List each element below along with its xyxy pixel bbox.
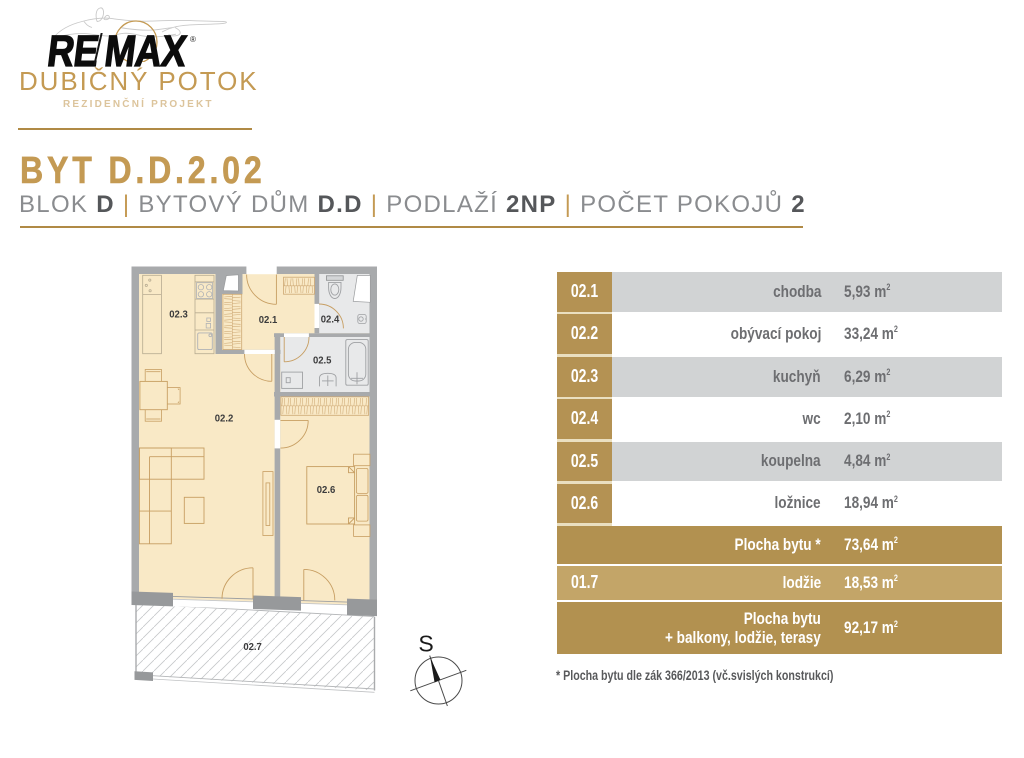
svg-text:S: S [418,631,433,657]
svg-text:02.1: 02.1 [259,315,278,326]
svg-text:02.3: 02.3 [169,310,188,321]
svg-text:02.5: 02.5 [313,356,332,367]
svg-text:02.7: 02.7 [243,642,262,653]
svg-text:02.6: 02.6 [317,485,336,496]
svg-text:02.2: 02.2 [215,414,234,425]
svg-text:02.4: 02.4 [321,315,340,326]
